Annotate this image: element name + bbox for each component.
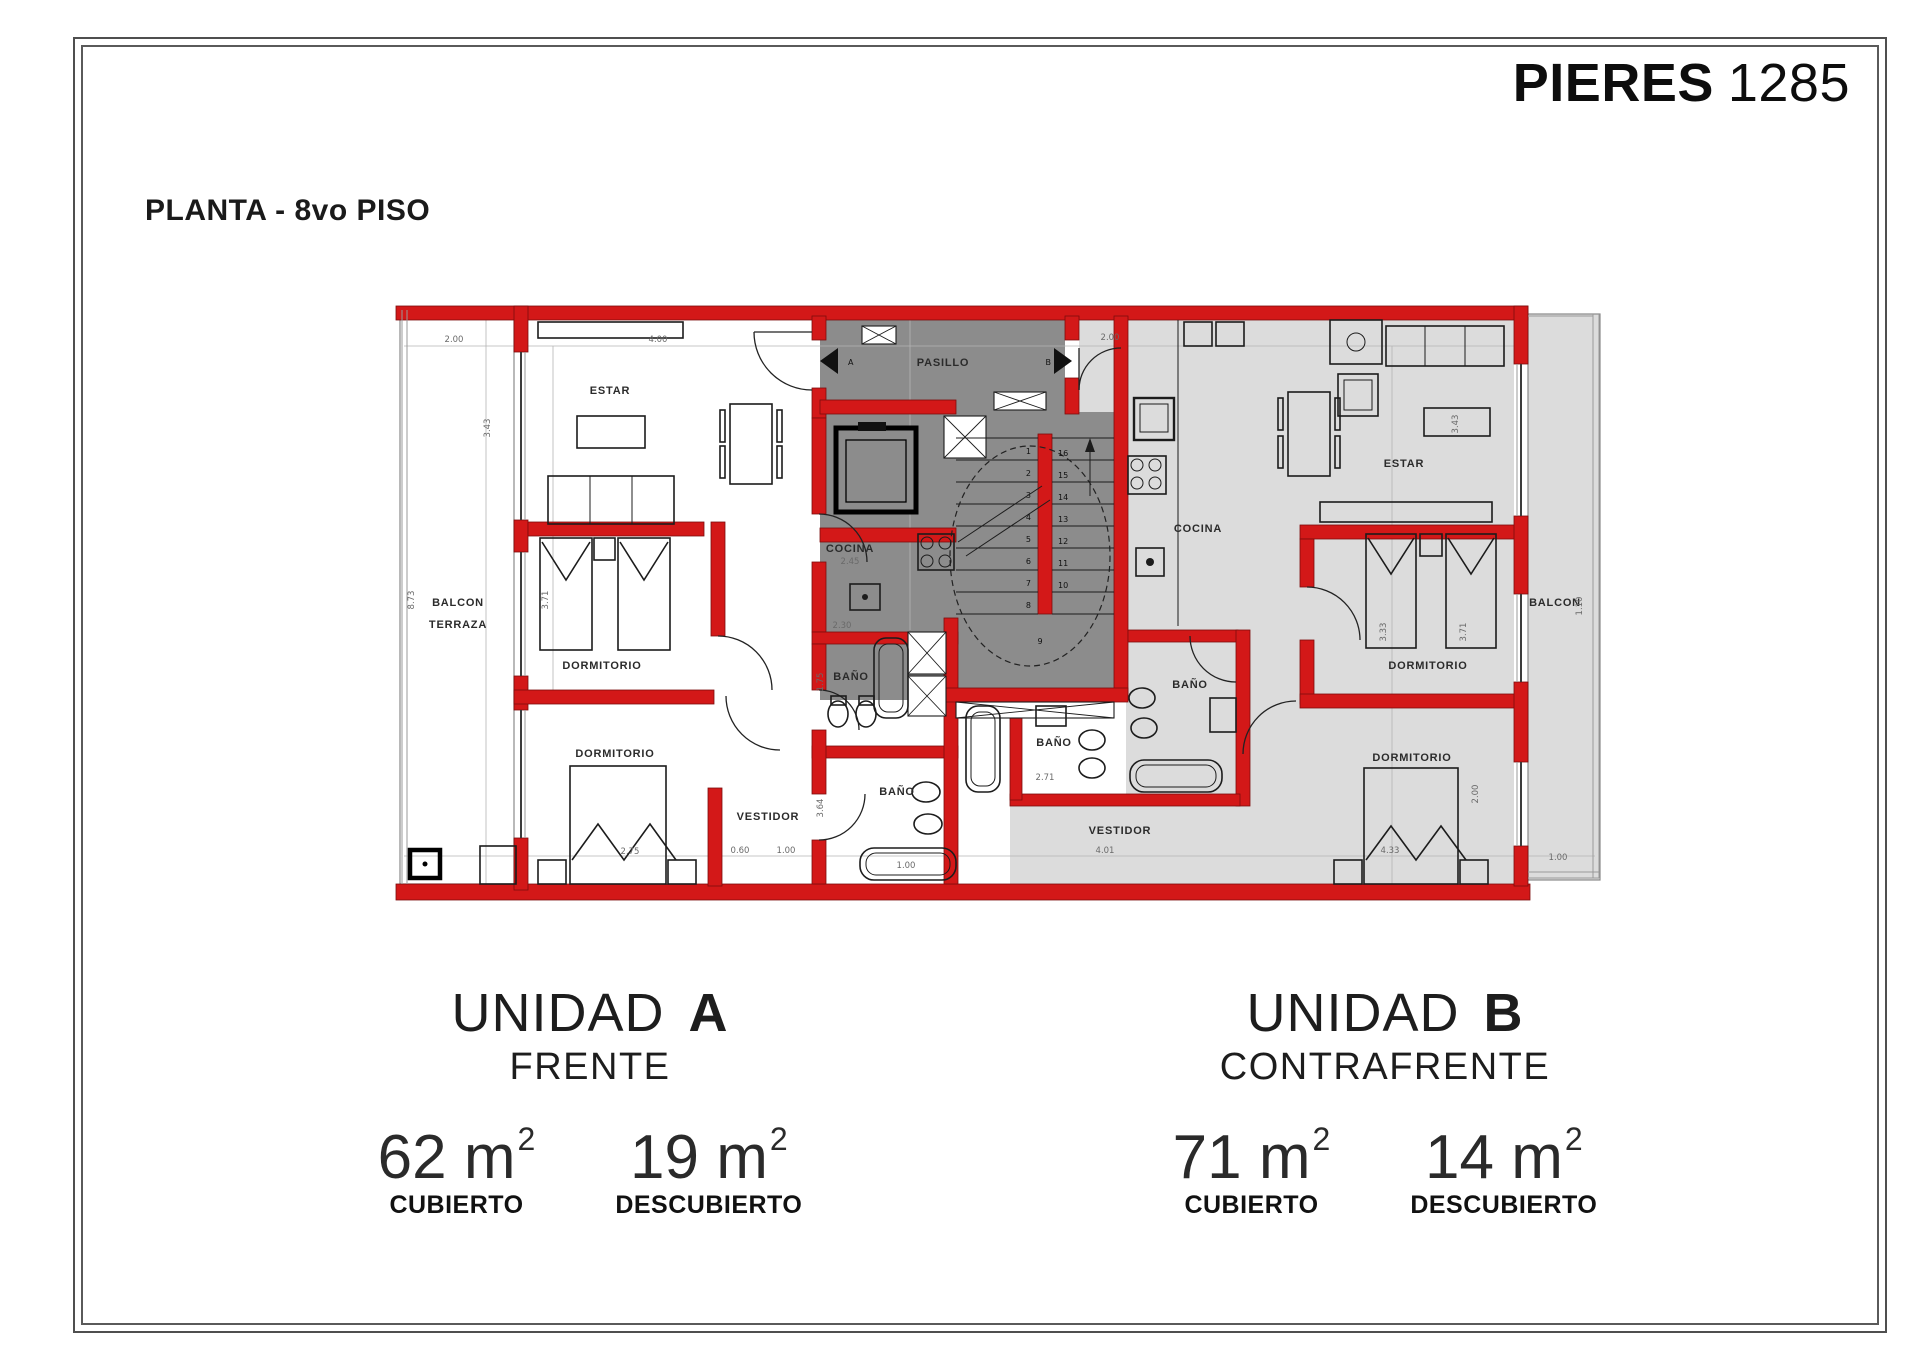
project-number: 1285 — [1728, 53, 1850, 113]
unit-a-uncovered: 19 m2 DESCUBIERTO — [615, 1123, 802, 1220]
unit-a-uncovered-sup: 2 — [770, 1121, 788, 1157]
room-label-cocina-b: COCINA — [1174, 523, 1222, 535]
unit-a-letter: A — [689, 983, 729, 1043]
page-title: PLANTA - 8vo PISO — [145, 194, 430, 228]
dim: 4.00 — [649, 335, 668, 345]
bidet — [914, 814, 942, 834]
step-number: 1 — [1026, 447, 1031, 456]
step-number: 14 — [1058, 493, 1068, 502]
dining-table — [720, 404, 782, 484]
bathtub — [966, 706, 1000, 792]
dim: 2.00 — [1101, 333, 1120, 343]
exit-b-label: B — [1046, 358, 1052, 367]
unit-b-orientation: CONTRAFRENTE — [1125, 1046, 1645, 1089]
dim: 0.60 — [731, 846, 750, 856]
dim: 3.64 — [816, 799, 826, 818]
elevator-icon — [836, 422, 916, 512]
room-label-cocina-a: COCINA — [826, 543, 874, 555]
step-number: 4 — [1026, 513, 1031, 522]
toilet — [912, 782, 940, 802]
unit-b-word: UNIDAD — [1246, 983, 1459, 1043]
room-label-dormitorio-a1: DORMITORIO — [562, 660, 641, 672]
dim: 2.71 — [1036, 773, 1055, 783]
step-number: 10 — [1058, 581, 1068, 590]
toilet — [828, 696, 848, 727]
step-number: 12 — [1058, 537, 1068, 546]
floorplan-sheet: PIERES1285 PLANTA - 8vo PISO — [0, 0, 1920, 1358]
dim: 3.71 — [1459, 623, 1469, 642]
room-label-dormitorio-a2: DORMITORIO — [575, 748, 654, 760]
dim: 2.45 — [841, 557, 860, 567]
unit-a-covered-label: CUBIERTO — [378, 1191, 536, 1220]
room-label-pasillo: PASILLO — [917, 357, 969, 369]
room-label-bano-a1: BAÑO — [833, 670, 869, 683]
unit-b-covered-sup: 2 — [1313, 1121, 1331, 1157]
unit-b-letter: B — [1484, 983, 1524, 1043]
room-label-vestidor-a: VESTIDOR — [737, 811, 800, 823]
toilet — [1079, 730, 1105, 750]
room-label-bano-b1: BAÑO — [1036, 736, 1072, 749]
coffee-table — [577, 416, 645, 448]
unit-a-covered-value: 62 m — [378, 1123, 516, 1192]
step-number: 11 — [1058, 559, 1068, 568]
step-number: 5 — [1026, 535, 1031, 544]
bidet — [856, 696, 876, 727]
unit-a-uncovered-label: DESCUBIERTO — [615, 1191, 802, 1220]
room-label-bano-a2: BAÑO — [879, 785, 915, 798]
double-bed — [538, 766, 696, 884]
exit-a-label: A — [848, 358, 854, 367]
room-label-estar-a: ESTAR — [590, 385, 630, 397]
bidet — [1079, 758, 1105, 778]
unit-b-entry-floor — [1079, 316, 1114, 412]
dim: 2.00 — [445, 335, 464, 345]
floorplan-drawing: 1 2 3 4 5 6 7 8 16 15 14 13 12 11 10 9 — [390, 300, 1650, 920]
dim: 4.01 — [1096, 846, 1115, 856]
step-number: 8 — [1026, 601, 1031, 610]
unit-b-summary: UNIDADB CONTRAFRENTE 71 m2 CUBIERTO 14 m… — [1125, 982, 1645, 1220]
unit-b-covered: 71 m2 CUBIERTO — [1173, 1123, 1331, 1220]
dim: 3.71 — [541, 591, 551, 610]
unit-a-summary: UNIDADA FRENTE 62 m2 CUBIERTO 19 m2 DESC… — [330, 982, 850, 1220]
dim: 2.30 — [833, 621, 852, 631]
step-number: 7 — [1026, 579, 1031, 588]
step-number: 3 — [1026, 491, 1031, 500]
dim: 3.43 — [483, 419, 493, 438]
unit-a-title: UNIDADA — [330, 982, 850, 1044]
room-label-dormitorio-b2: DORMITORIO — [1372, 752, 1451, 764]
unit-a-uncovered-value: 19 m — [630, 1123, 768, 1192]
unit-b-covered-label: CUBIERTO — [1173, 1191, 1331, 1220]
single-bed — [618, 538, 670, 650]
unit-b-uncovered-sup: 2 — [1565, 1121, 1583, 1157]
unit-a-orientation: FRENTE — [330, 1046, 850, 1089]
dim: 1.00 — [1549, 853, 1568, 863]
dim: 3.43 — [1451, 415, 1461, 434]
room-label-balcon-terraza-1: BALCON — [432, 597, 484, 609]
room-label-balcon-b: BALCON — [1529, 597, 1581, 609]
unit-a-covered: 62 m2 CUBIERTO — [378, 1123, 536, 1220]
unit-a-word: UNIDAD — [451, 983, 664, 1043]
dim: 1.10 — [1575, 597, 1585, 616]
unit-b-covered-value: 71 m — [1173, 1123, 1311, 1192]
room-label-vestidor-b: VESTIDOR — [1089, 825, 1152, 837]
step-number: 15 — [1058, 471, 1068, 480]
room-label-dormitorio-b1: DORMITORIO — [1388, 660, 1467, 672]
step-number: 6 — [1026, 557, 1031, 566]
step-number: 2 — [1026, 469, 1031, 478]
unit-a-covered-sup: 2 — [518, 1121, 536, 1157]
unit-b-uncovered: 14 m2 DESCUBIERTO — [1410, 1123, 1597, 1220]
dim: 1.00 — [897, 861, 916, 871]
dim: 1.00 — [777, 846, 796, 856]
step-number: 16 — [1058, 449, 1068, 458]
unit-b-uncovered-label: DESCUBIERTO — [1410, 1191, 1597, 1220]
dim: 1.75 — [816, 673, 826, 692]
room-label-estar-b: ESTAR — [1384, 458, 1424, 470]
unit-b-uncovered-value: 14 m — [1425, 1123, 1563, 1192]
step-number: 9 — [1037, 637, 1042, 646]
step-number: 13 — [1058, 515, 1068, 524]
dim: 2.00 — [1471, 785, 1481, 804]
dim: 8.73 — [407, 591, 417, 610]
dim: 2.75 — [621, 847, 640, 857]
room-label-balcon-terraza-2: TERRAZA — [429, 619, 487, 631]
project-name: PIERES — [1513, 53, 1714, 113]
dim: 3.33 — [1379, 623, 1389, 642]
room-label-bano-b2: BAÑO — [1172, 678, 1208, 691]
project-title: PIERES1285 — [1513, 52, 1850, 114]
dim: 4.33 — [1381, 846, 1400, 856]
sofa — [548, 476, 674, 524]
unit-b-title: UNIDADB — [1125, 982, 1645, 1044]
nightstand — [594, 538, 615, 560]
